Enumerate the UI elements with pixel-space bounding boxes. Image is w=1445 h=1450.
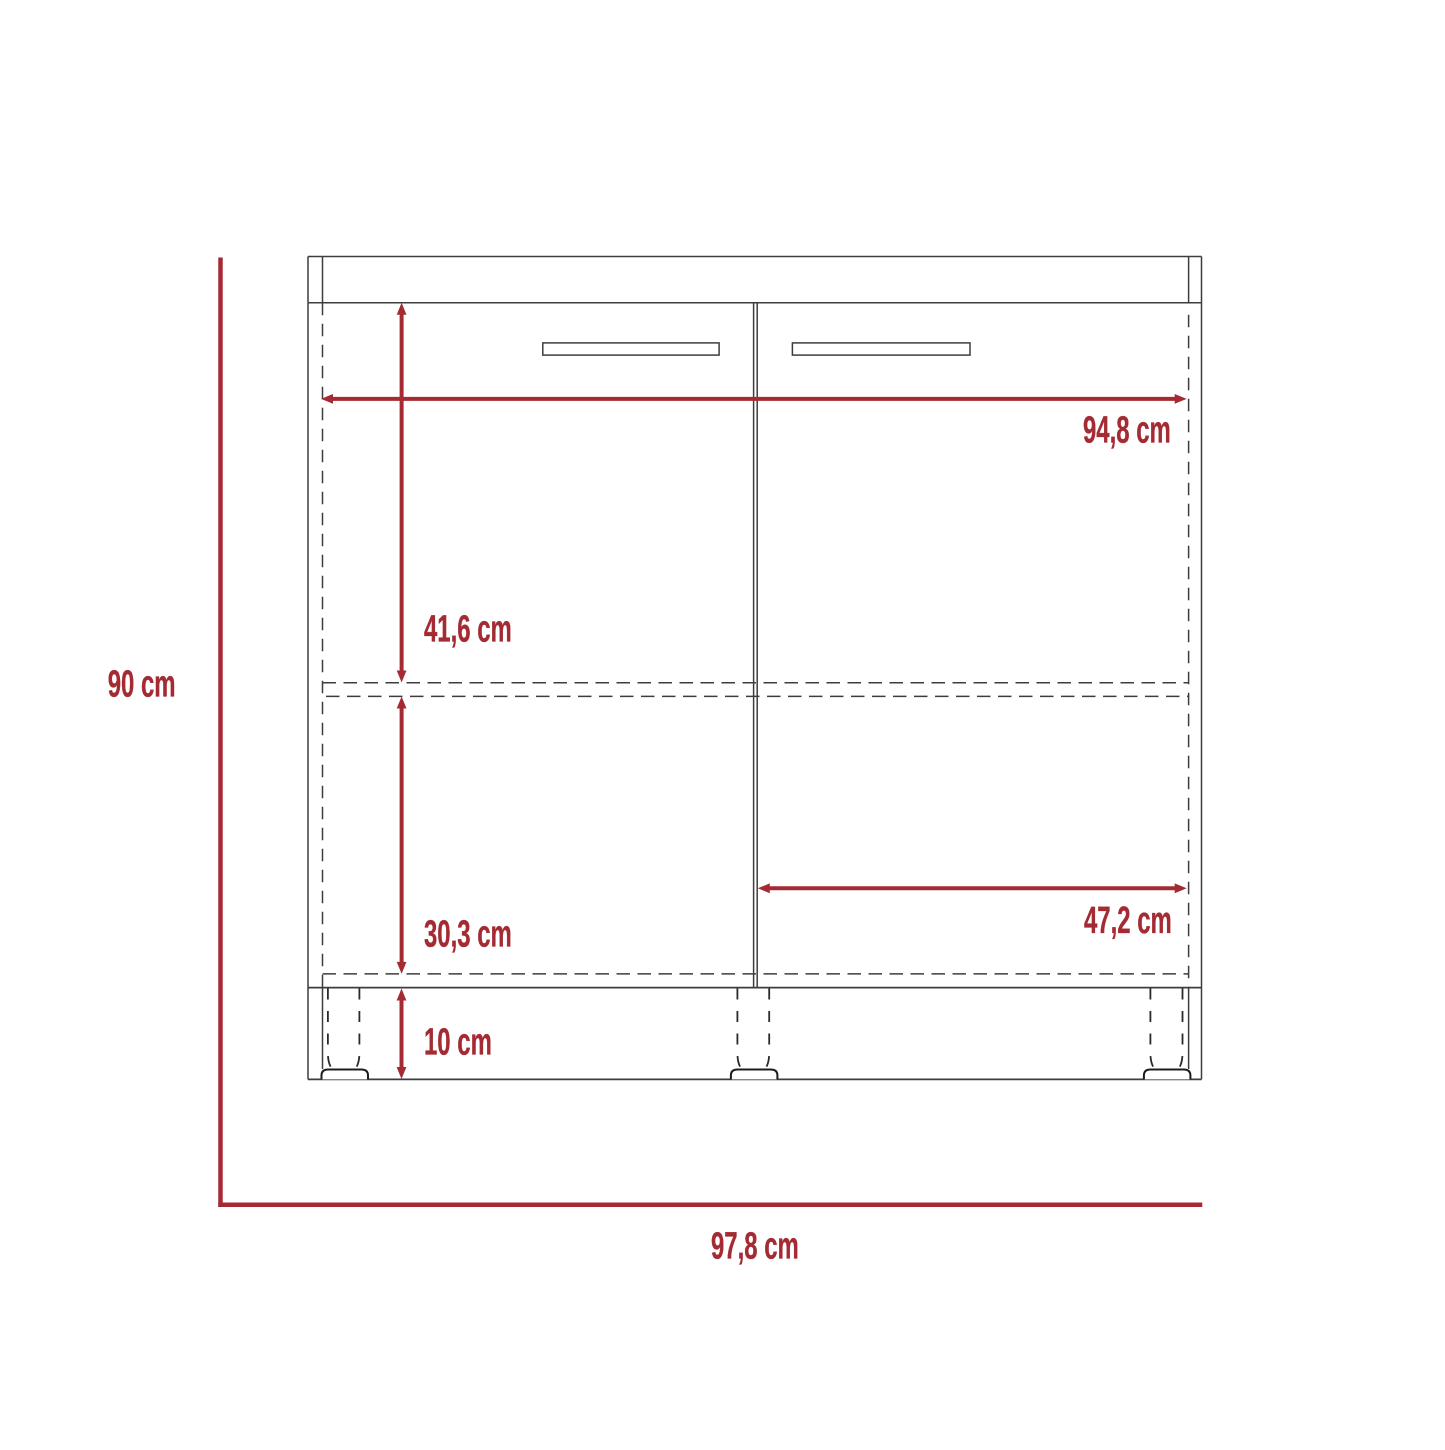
svg-text:10 cm: 10 cm [424, 1020, 492, 1063]
svg-text:47,2 cm: 47,2 cm [1084, 898, 1172, 941]
svg-text:41,6 cm: 41,6 cm [424, 607, 512, 650]
svg-text:97,8 cm: 97,8 cm [711, 1224, 799, 1267]
svg-text:30,3 cm: 30,3 cm [424, 912, 512, 955]
svg-text:90 cm: 90 cm [108, 662, 176, 705]
svg-text:94,8 cm: 94,8 cm [1083, 408, 1171, 451]
